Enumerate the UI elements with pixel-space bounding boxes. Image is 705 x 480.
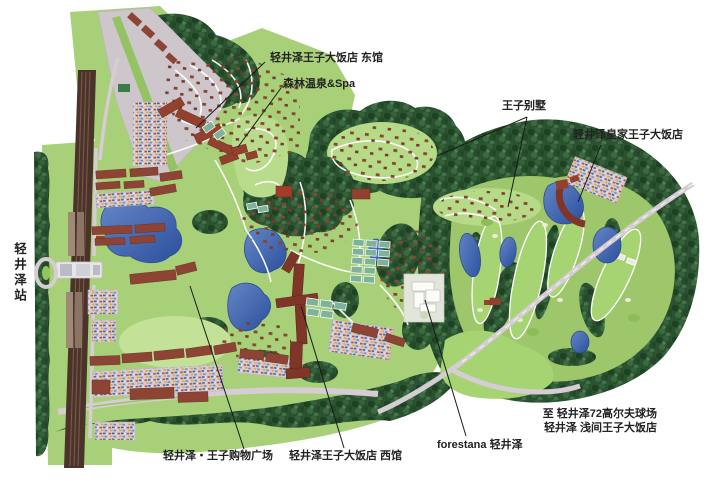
note-to-golf-line2: 轻井泽 浅间王子大饭店	[499, 421, 657, 435]
forestana-building	[404, 274, 444, 322]
label-prince-villa: 王子别墅	[502, 100, 546, 113]
note-to-golf: 至 轻井泽72高尔夫球场 轻井泽 浅间王子大饭店	[499, 407, 657, 435]
label-forestana: forestana 轻井泽	[437, 439, 523, 452]
label-west-wing: 轻井泽王子大饭店 西馆	[289, 450, 402, 463]
label-east-wing: 轻井泽王子大饭店 东馆	[270, 52, 383, 65]
note-to-golf-line1: 至 轻井泽72高尔夫球场	[499, 407, 657, 421]
label-forest-spa: 森林温泉&Spa	[283, 78, 355, 91]
label-station: 轻井泽站	[12, 242, 25, 304]
label-royal-prince-hotel: 轻井泽皇家王子大饭店	[573, 129, 683, 142]
label-shopping-plaza: 轻井泽・王子购物广场	[163, 450, 273, 463]
resort-map-page: 轻井泽王子大饭店 东馆 森林温泉&Spa 王子别墅 轻井泽皇家王子大饭店 轻井泽…	[0, 0, 705, 480]
